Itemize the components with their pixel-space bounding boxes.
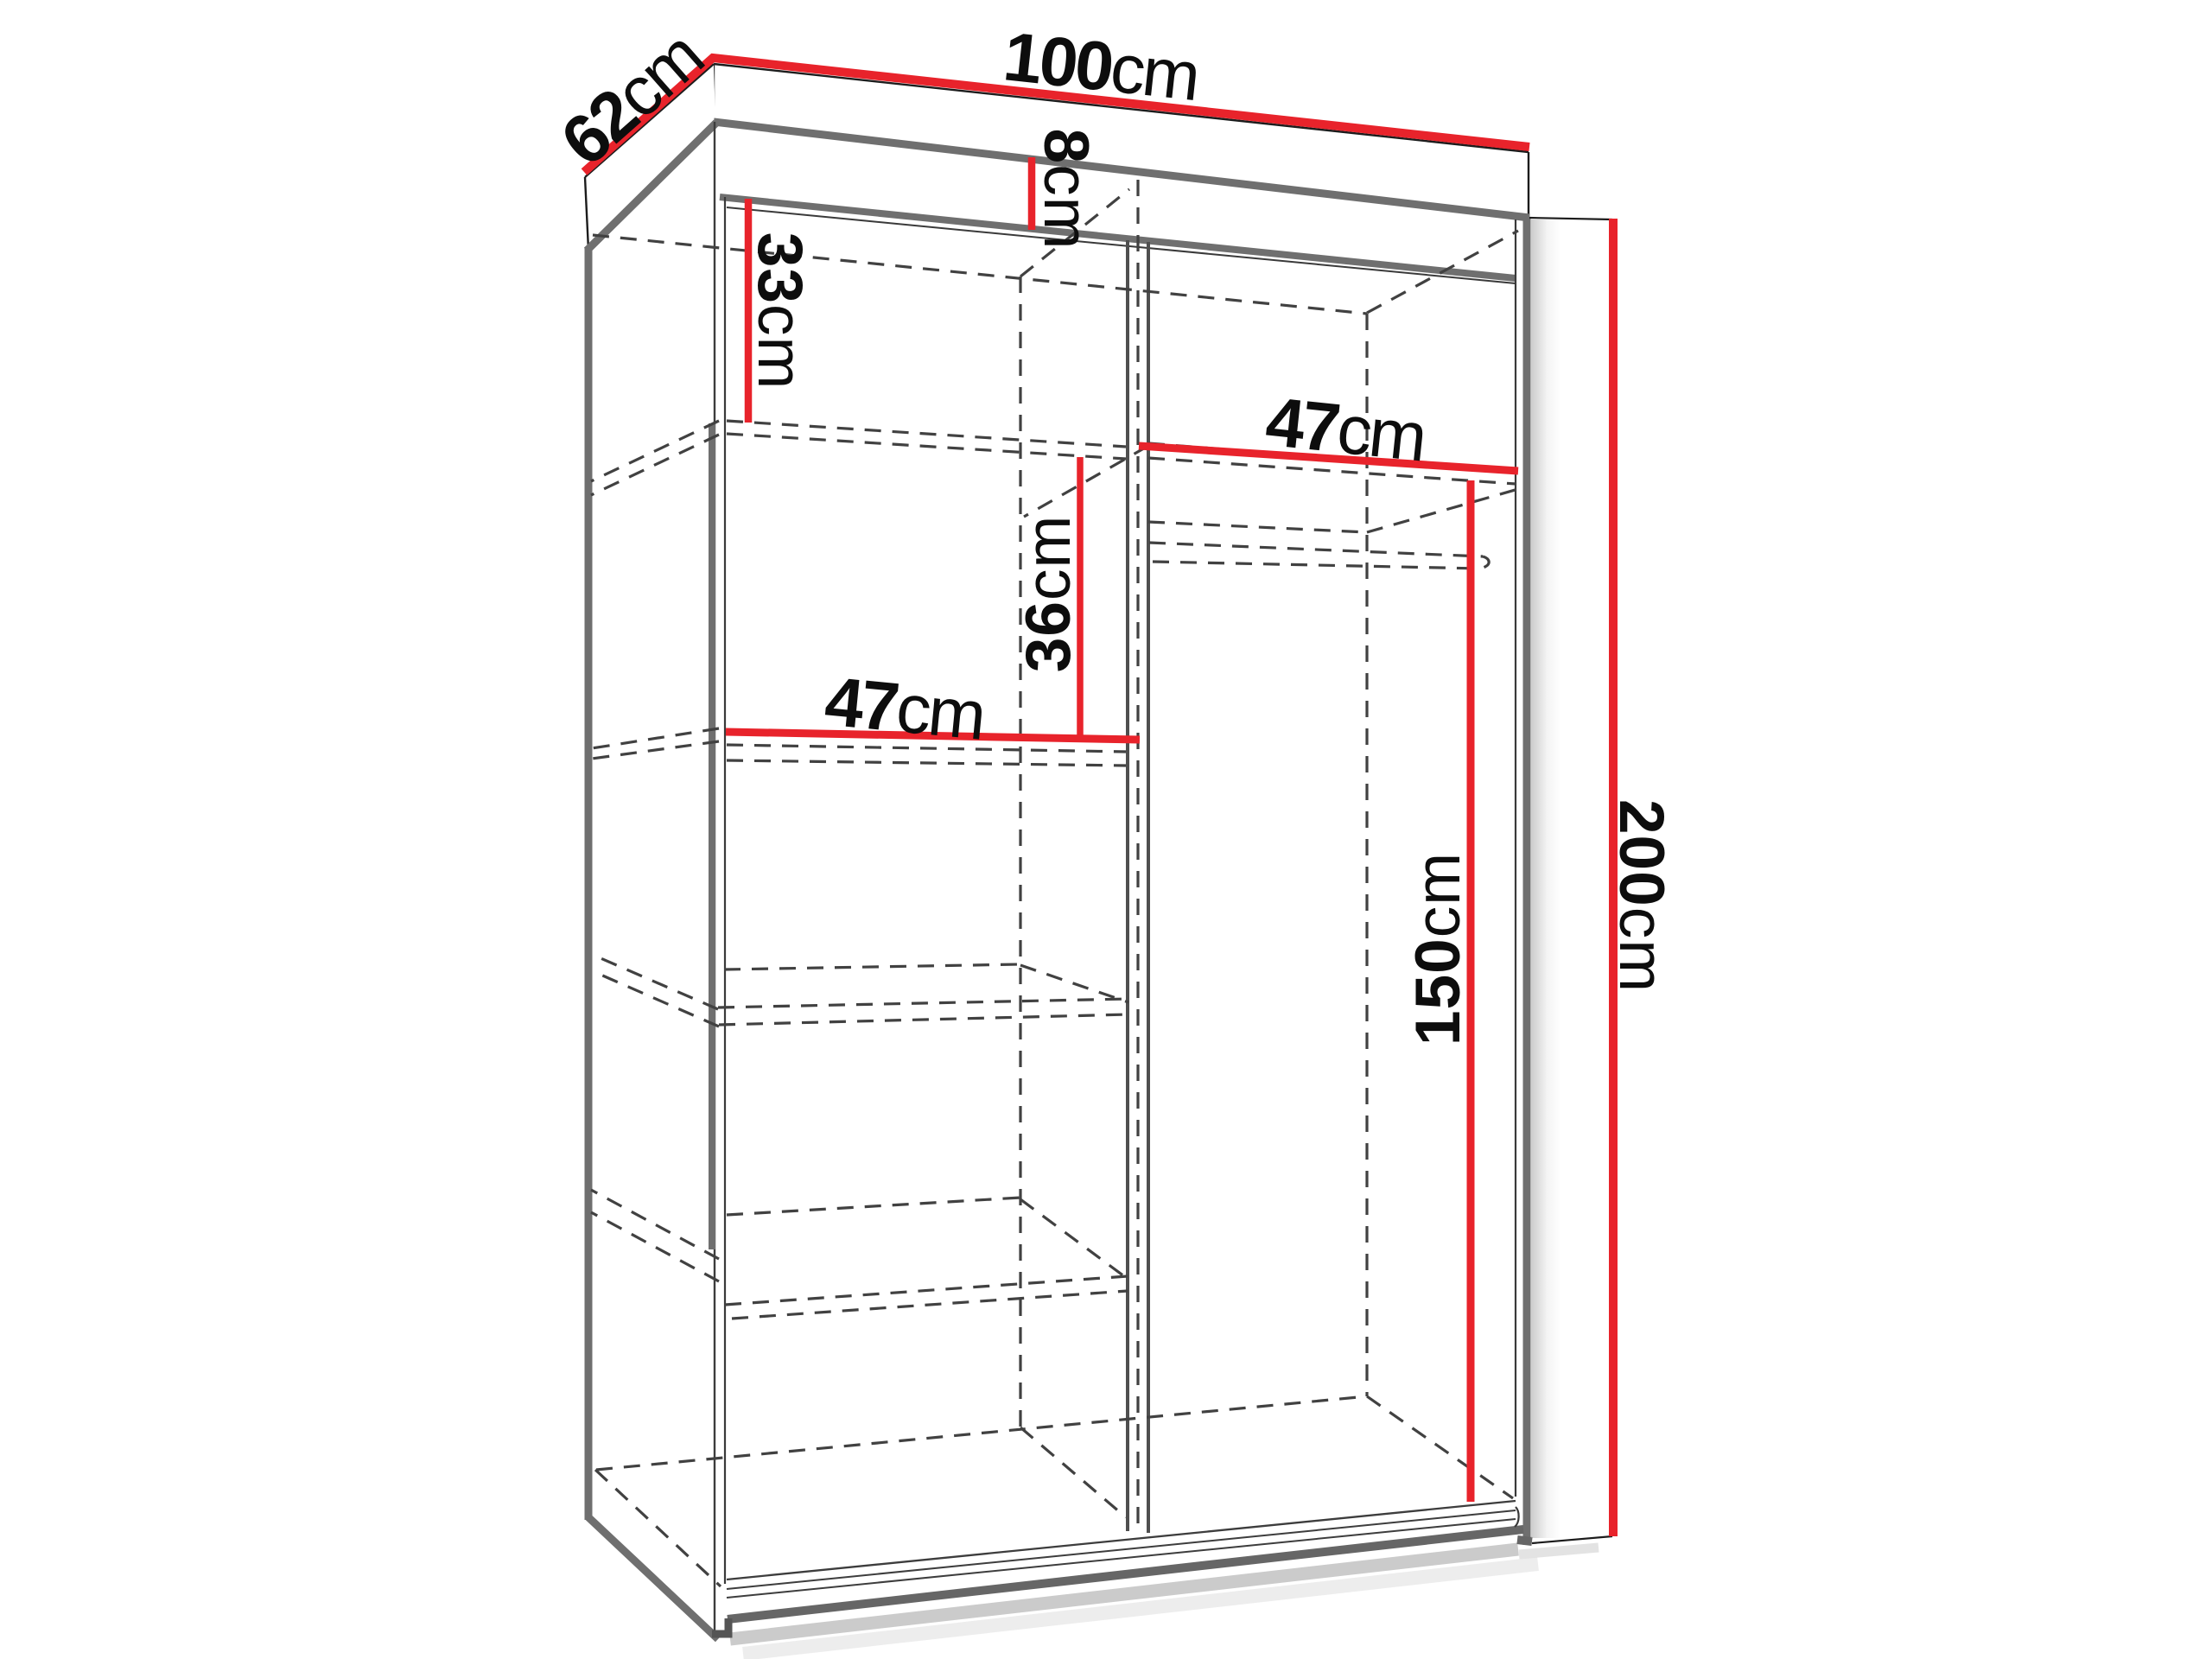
svg-text:8cm: 8cm	[1031, 129, 1101, 251]
svg-text:200cm: 200cm	[1606, 799, 1676, 993]
svg-text:150cm: 150cm	[1403, 852, 1473, 1046]
svg-text:33cm: 33cm	[745, 232, 815, 391]
svg-text:47cm: 47cm	[1262, 383, 1428, 476]
svg-text:47cm: 47cm	[822, 663, 987, 754]
svg-text:36cm: 36cm	[1014, 515, 1084, 673]
